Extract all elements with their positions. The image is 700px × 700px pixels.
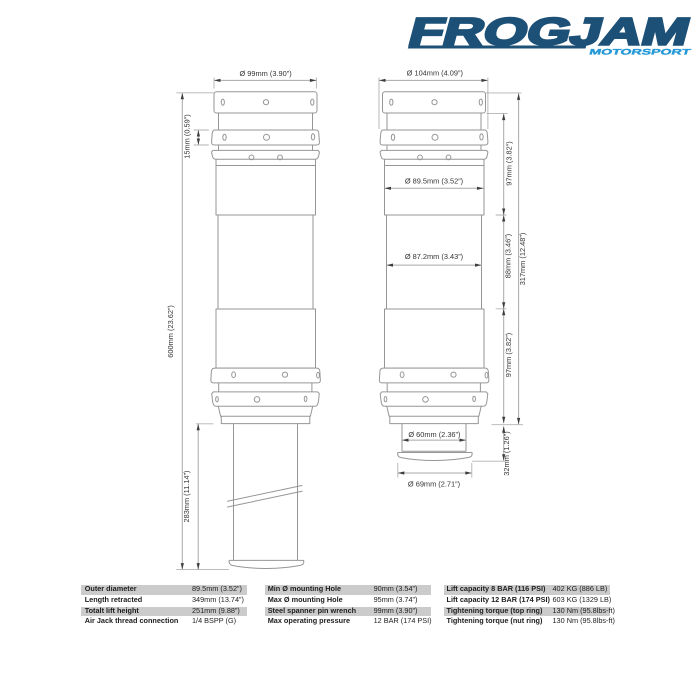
svg-text:97mm (3.82”): 97mm (3.82”) — [504, 333, 513, 377]
svg-text:Ø 104mm (4.09”): Ø 104mm (4.09”) — [407, 69, 463, 78]
svg-text:Ø 99mm (3.90”): Ø 99mm (3.90”) — [240, 69, 292, 78]
svg-text:Ø 69mm (2.71”): Ø 69mm (2.71”) — [408, 480, 460, 489]
svg-text:97mm (3.82”): 97mm (3.82”) — [505, 141, 514, 185]
svg-text:600mm (23.62”): 600mm (23.62”) — [166, 305, 175, 358]
svg-text:317mm (12.48”): 317mm (12.48”) — [518, 233, 527, 286]
svg-text:MOTORSPORT: MOTORSPORT — [588, 48, 691, 57]
svg-text:32mm (1.26”): 32mm (1.26”) — [502, 431, 511, 475]
svg-text:Ø 87.2mm (3.43”): Ø 87.2mm (3.43”) — [405, 252, 463, 261]
svg-text:Ø 60mm (2.36”): Ø 60mm (2.36”) — [408, 430, 460, 439]
svg-text:Ø 89.5mm (3.52”): Ø 89.5mm (3.52”) — [405, 176, 463, 185]
svg-text:15mm (0.59”): 15mm (0.59”) — [183, 114, 192, 158]
svg-text:88mm (3.46”): 88mm (3.46”) — [503, 234, 512, 278]
svg-text:283mm (11.14”): 283mm (11.14”) — [182, 470, 191, 522]
